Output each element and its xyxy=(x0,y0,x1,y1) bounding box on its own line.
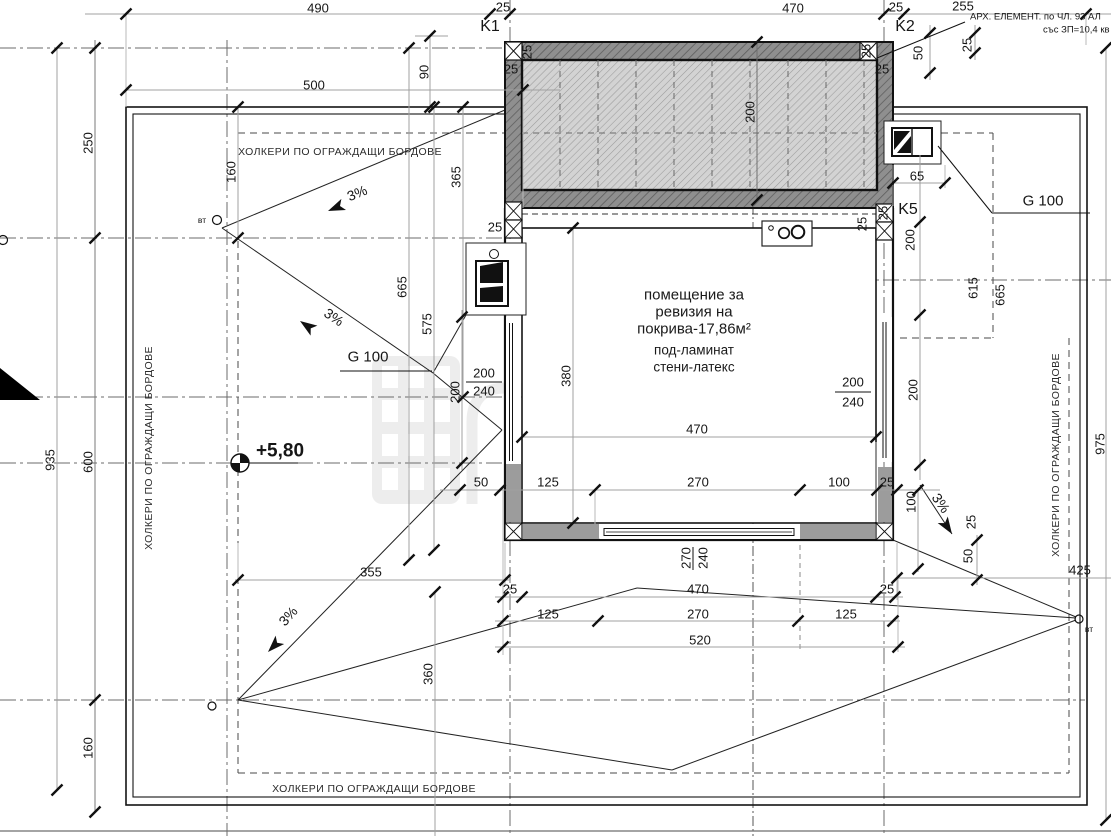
penthouse-room xyxy=(505,202,893,540)
window-left xyxy=(506,317,521,464)
window-right xyxy=(878,317,892,462)
elevation-marker xyxy=(231,454,249,472)
flue-symbol-icon xyxy=(762,221,812,246)
vent-symbol-right-icon xyxy=(884,121,941,164)
roof-plan-sheet: CLOUD HOMES xyxy=(0,0,1111,836)
section-marker-icon xyxy=(0,368,40,400)
vent-symbol-left-icon xyxy=(466,243,526,315)
roof-element xyxy=(505,42,893,208)
window-bottom xyxy=(600,524,800,539)
plan-drawing: CLOUD HOMES xyxy=(0,0,1111,836)
